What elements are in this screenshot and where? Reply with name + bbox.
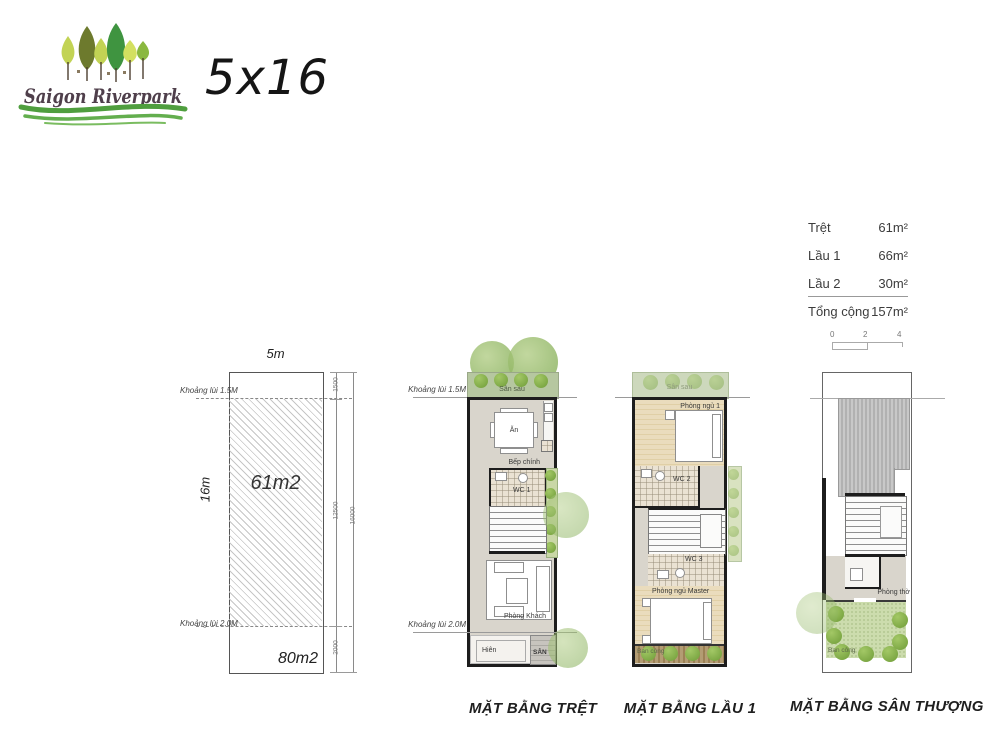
room-label-bedroom1: Phòng ngủ 1 (660, 403, 720, 410)
floor-vent (541, 440, 553, 452)
dim-mid: 12500 (333, 496, 340, 526)
stair-landing (700, 514, 722, 548)
floor-area: 61m² (878, 220, 908, 235)
room-label-master: Phòng ngủ Master (652, 588, 709, 595)
shrub-icon (858, 646, 874, 662)
floorplan-sheet: Saigon Riverpark 5x16 Trệt 61m² Lầu 1 66… (0, 0, 1000, 754)
stair-landing (880, 506, 902, 538)
nightstand (642, 598, 651, 607)
shrub-icon (707, 646, 722, 661)
scale-tick-4: 4 (897, 330, 901, 339)
total-label: Tổng cộng (808, 304, 869, 319)
toilet (518, 473, 528, 483)
room-label-roof-balcony: Ban công (828, 648, 855, 655)
shrub-icon (663, 646, 678, 661)
room-label-kitchen: Bếp chính (480, 459, 540, 466)
tree-icon (548, 628, 588, 668)
tree-icon (796, 592, 838, 634)
room-label-living: Phòng Khách (486, 613, 546, 620)
floor-label: Trệt (808, 220, 831, 235)
coffee-table (506, 578, 528, 604)
shrub-icon (892, 612, 908, 628)
room-label-wc3: WC 3 (685, 556, 703, 563)
room-label-backyard: Sân sau (467, 386, 557, 393)
room-label-worship: Phòng thờ (850, 589, 910, 596)
room-label-porch: Hiên (482, 647, 496, 654)
setback-line-top (196, 398, 352, 399)
plan-title-ground: MẶT BẰNG TRỆT (468, 700, 598, 717)
shrub-icon (685, 646, 700, 661)
setback-top-label: Khoảng lùi 1.5M (180, 387, 238, 395)
ground-floor-plan: Sân sau Khoảng lùi 1.5M Ăn Bếp chính WC … (410, 340, 590, 725)
shrub-icon (728, 488, 739, 499)
shrub-icon (514, 373, 528, 387)
summary-row: Trệt 61m² (808, 220, 908, 235)
nightstand (642, 635, 651, 644)
floor-label: Lầu 1 (808, 248, 841, 263)
room-label-balcony: Ban công (637, 649, 664, 656)
tree-icon (543, 492, 589, 538)
lot-area-label: 80m2 (258, 650, 318, 668)
nightstand (665, 410, 675, 420)
shrub-icon (545, 470, 556, 481)
shrub-icon (494, 373, 508, 387)
appliance (544, 413, 553, 422)
lot-width-label: 5m (229, 346, 322, 361)
trees-logo-icon: Saigon Riverpark (15, 8, 195, 128)
sink (495, 472, 507, 481)
brand-logo: Saigon Riverpark (15, 8, 195, 128)
setback-ref-line (413, 632, 577, 633)
bed-pillow (712, 414, 721, 458)
roof-area (838, 398, 910, 470)
summary-row: Lầu 2 30m² (808, 276, 908, 291)
sofa (494, 562, 524, 573)
room-label-wc1: WC 1 (513, 487, 531, 494)
lot-size-title: 5x16 (205, 50, 329, 106)
dim-tick (330, 626, 342, 627)
staircase (489, 506, 547, 554)
sink (641, 469, 652, 478)
floor-area: 30m² (878, 276, 908, 291)
room-label-wc2: WC 2 (673, 476, 691, 483)
shrub-icon (728, 545, 739, 556)
plan-title-roof: MẶT BẰNG SÂN THƯỢNG (790, 698, 950, 715)
sink (657, 570, 669, 579)
toilet (675, 568, 685, 578)
lot-depth-label: 16m (198, 460, 213, 520)
buildable-area-hatch (229, 399, 322, 626)
setback-bottom-label: Khoảng lùi 2.0M (400, 621, 466, 629)
summary-row: Lầu 1 66m² (808, 248, 908, 263)
dining-table: Ăn (494, 412, 534, 448)
shrub-icon (728, 507, 739, 518)
build-area-label: 61m2 (229, 472, 322, 495)
dim-total: 16000 (350, 501, 357, 531)
floor-area: 66m² (878, 248, 908, 263)
floor-label: Lầu 2 (808, 276, 841, 291)
roof-terrace-plan: Phòng thờ Ban công MẶT BẰNG SÂN THƯỢNG (790, 340, 995, 725)
dim-bottom: 2000 (333, 633, 340, 663)
room-label-yard: SÂN (533, 650, 547, 657)
first-floor-plan: Sân sau Phòng ngủ 1 WC 2 WC 3 Phòng ngủ … (615, 340, 765, 725)
summary-total-row: Tổng cộng 157m² (808, 304, 908, 319)
stair-wall (489, 551, 545, 554)
summary-divider (808, 296, 908, 297)
shrub-icon (728, 526, 739, 537)
chair (500, 448, 528, 454)
room-label-backyard-ghost: Sân sau (632, 384, 727, 391)
appliance (544, 403, 553, 412)
scale-tick-0: 0 (830, 330, 834, 339)
setback-top-label: Khoảng lùi 1.5M (400, 386, 466, 394)
bed-pillow (703, 602, 712, 640)
dim-top: 1500 (333, 370, 340, 400)
total-area: 157m² (871, 304, 908, 319)
plan-title-first: MẶT BẰNG LẦU 1 (620, 700, 760, 717)
shrub-icon (728, 469, 739, 480)
sofa (536, 566, 550, 612)
wc-box (850, 568, 863, 581)
setback-bottom-label: Khoảng lùi 2.0M (180, 620, 238, 628)
scale-tick-2: 2 (863, 330, 867, 339)
dim-tick (330, 672, 357, 673)
shrub-icon (892, 634, 908, 650)
toilet (655, 471, 665, 481)
